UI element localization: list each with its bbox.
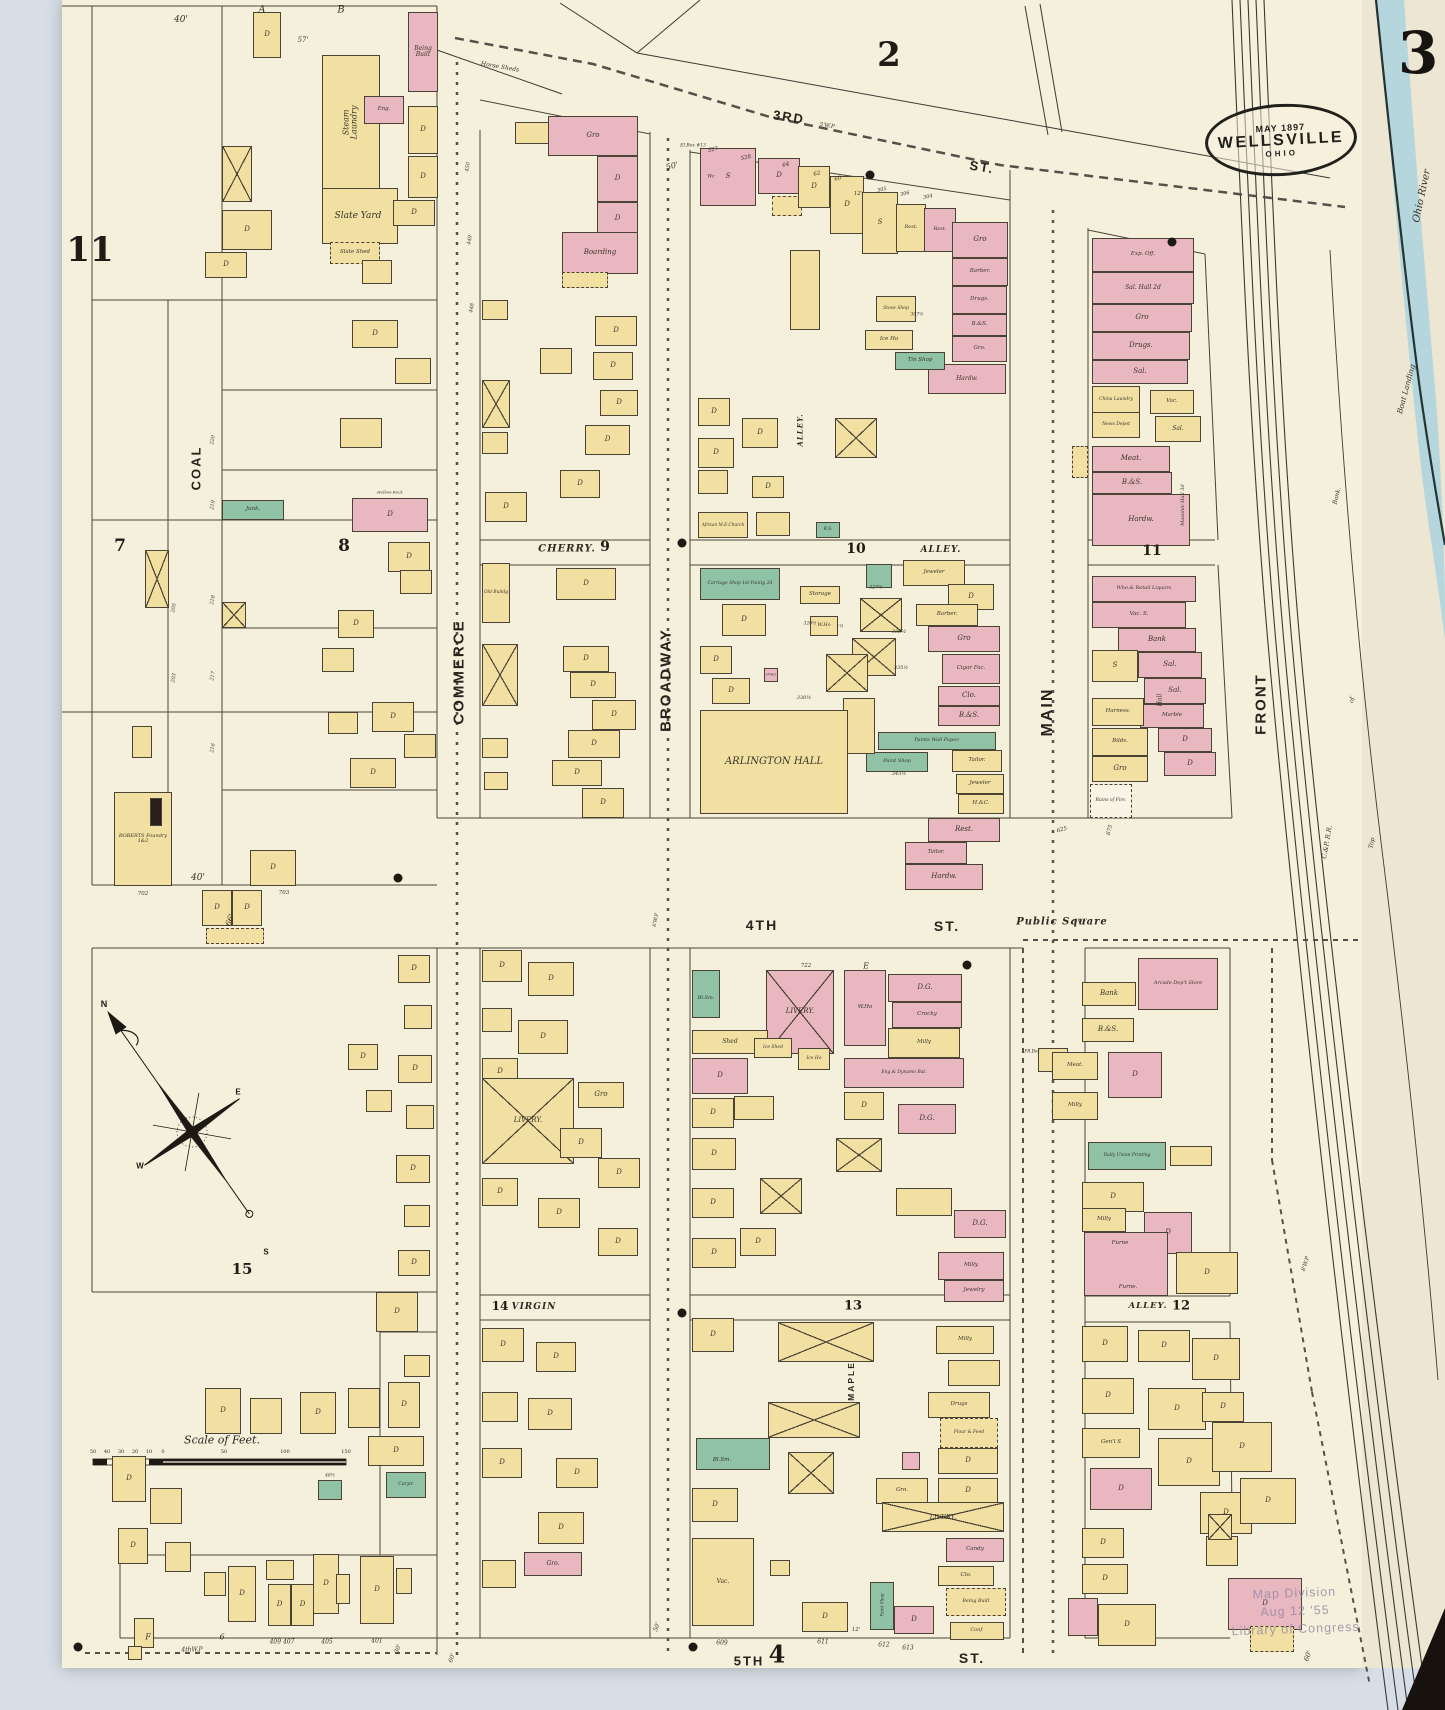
sanborn-map-sheet: DSteam LaundryEng.Being BuiltDDDDSlate S… — [0, 0, 1445, 1710]
street-centerlines — [85, 38, 1370, 1686]
sheet-2-boundary — [437, 0, 1330, 178]
scale-label: Scale of Feet. — [184, 1434, 260, 1447]
scale-bar — [93, 1459, 346, 1465]
sheet-number: 3 — [1398, 24, 1438, 82]
compass-rose — [61, 979, 299, 1250]
block-lot-lines — [62, 6, 1232, 1655]
state-name: OHIO — [1265, 148, 1298, 159]
library-of-congress-stamp: Map Division Aug 12 '55 Library of Congr… — [1179, 1580, 1411, 1642]
map-linework — [0, 0, 1445, 1710]
